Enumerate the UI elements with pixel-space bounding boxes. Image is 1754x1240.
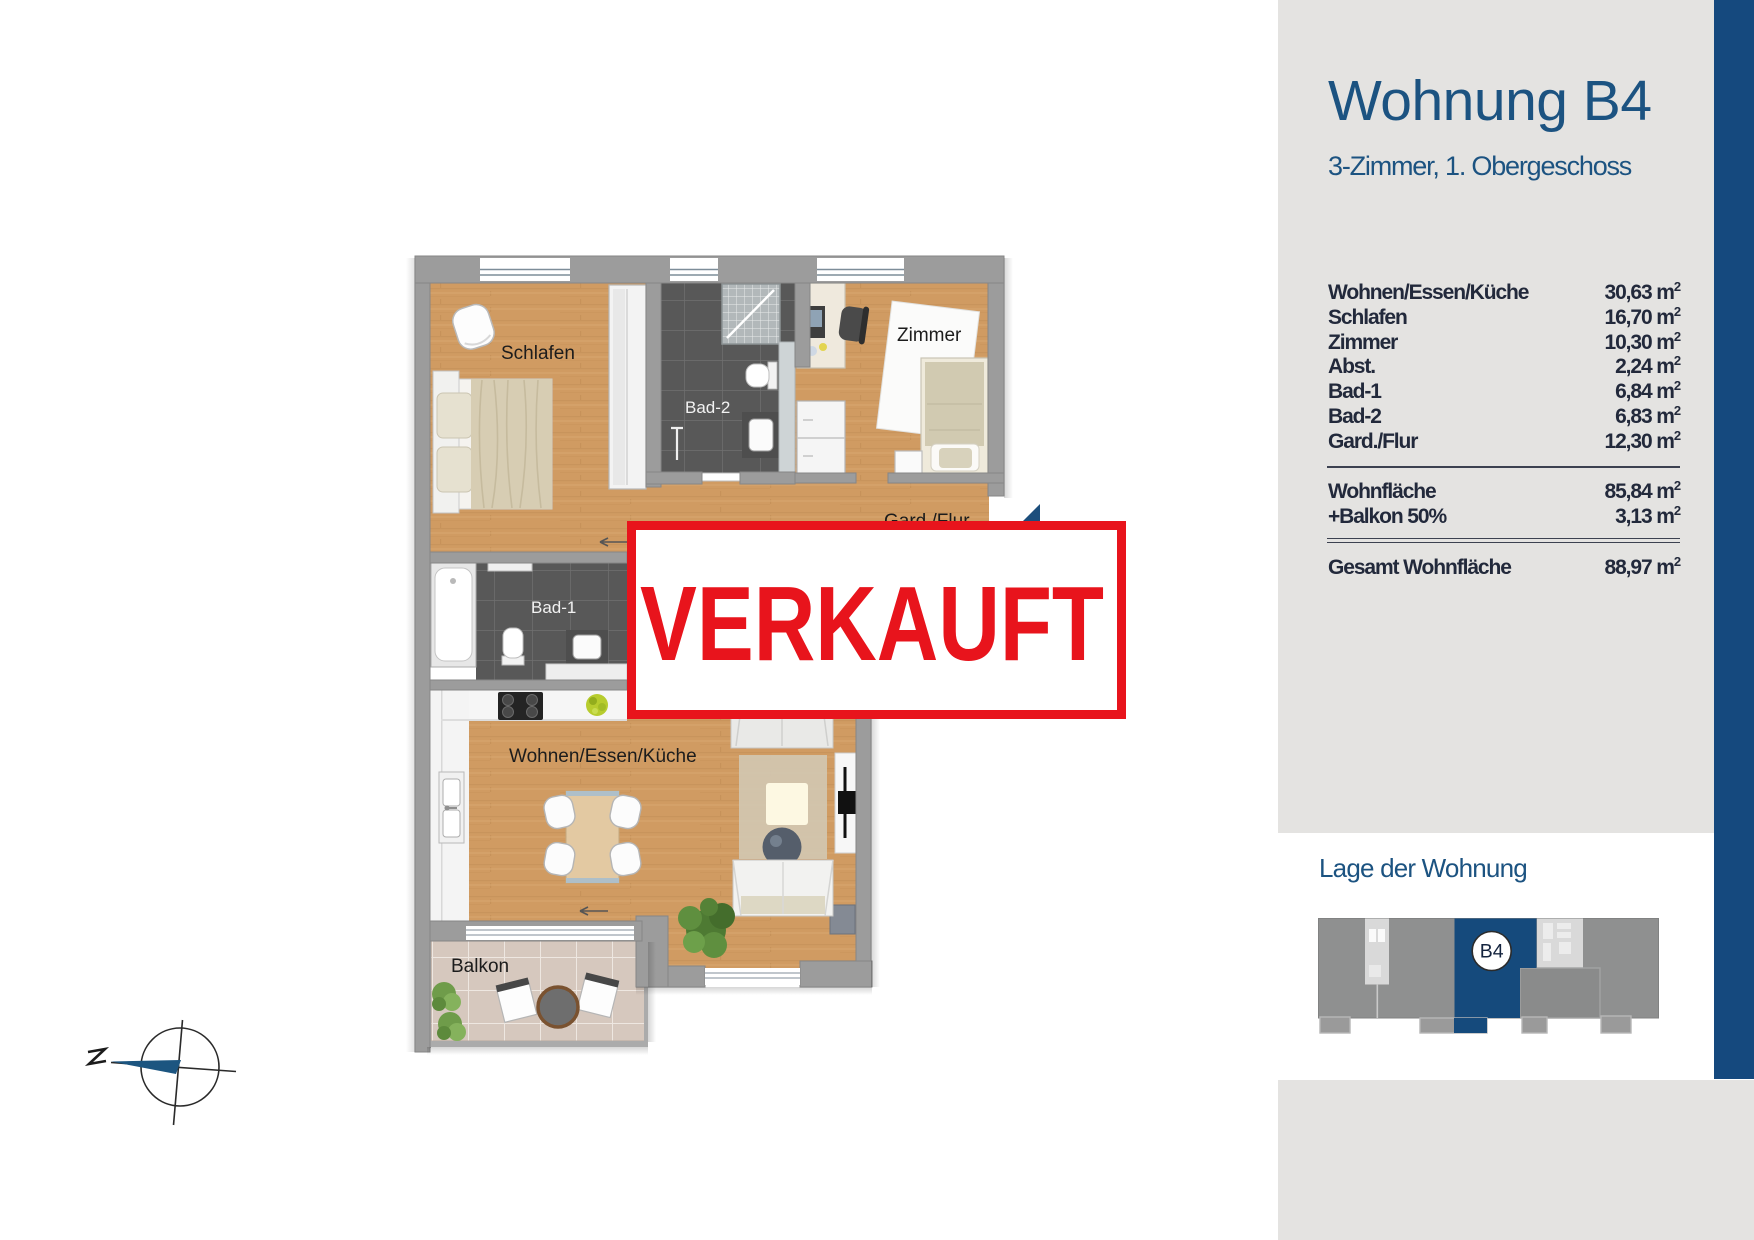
svg-text:Schlafen: Schlafen — [501, 343, 575, 364]
svg-text:VERKAUFT: VERKAUFT — [640, 565, 1104, 683]
svg-text:Zimmer: Zimmer — [897, 325, 962, 346]
svg-text:Balkon: Balkon — [451, 956, 509, 977]
svg-text:Bad-2: Bad-2 — [685, 398, 730, 417]
svg-text:Wohnen/Essen/Küche: Wohnen/Essen/Küche — [509, 746, 697, 767]
svg-text:Bad-1: Bad-1 — [531, 598, 576, 617]
